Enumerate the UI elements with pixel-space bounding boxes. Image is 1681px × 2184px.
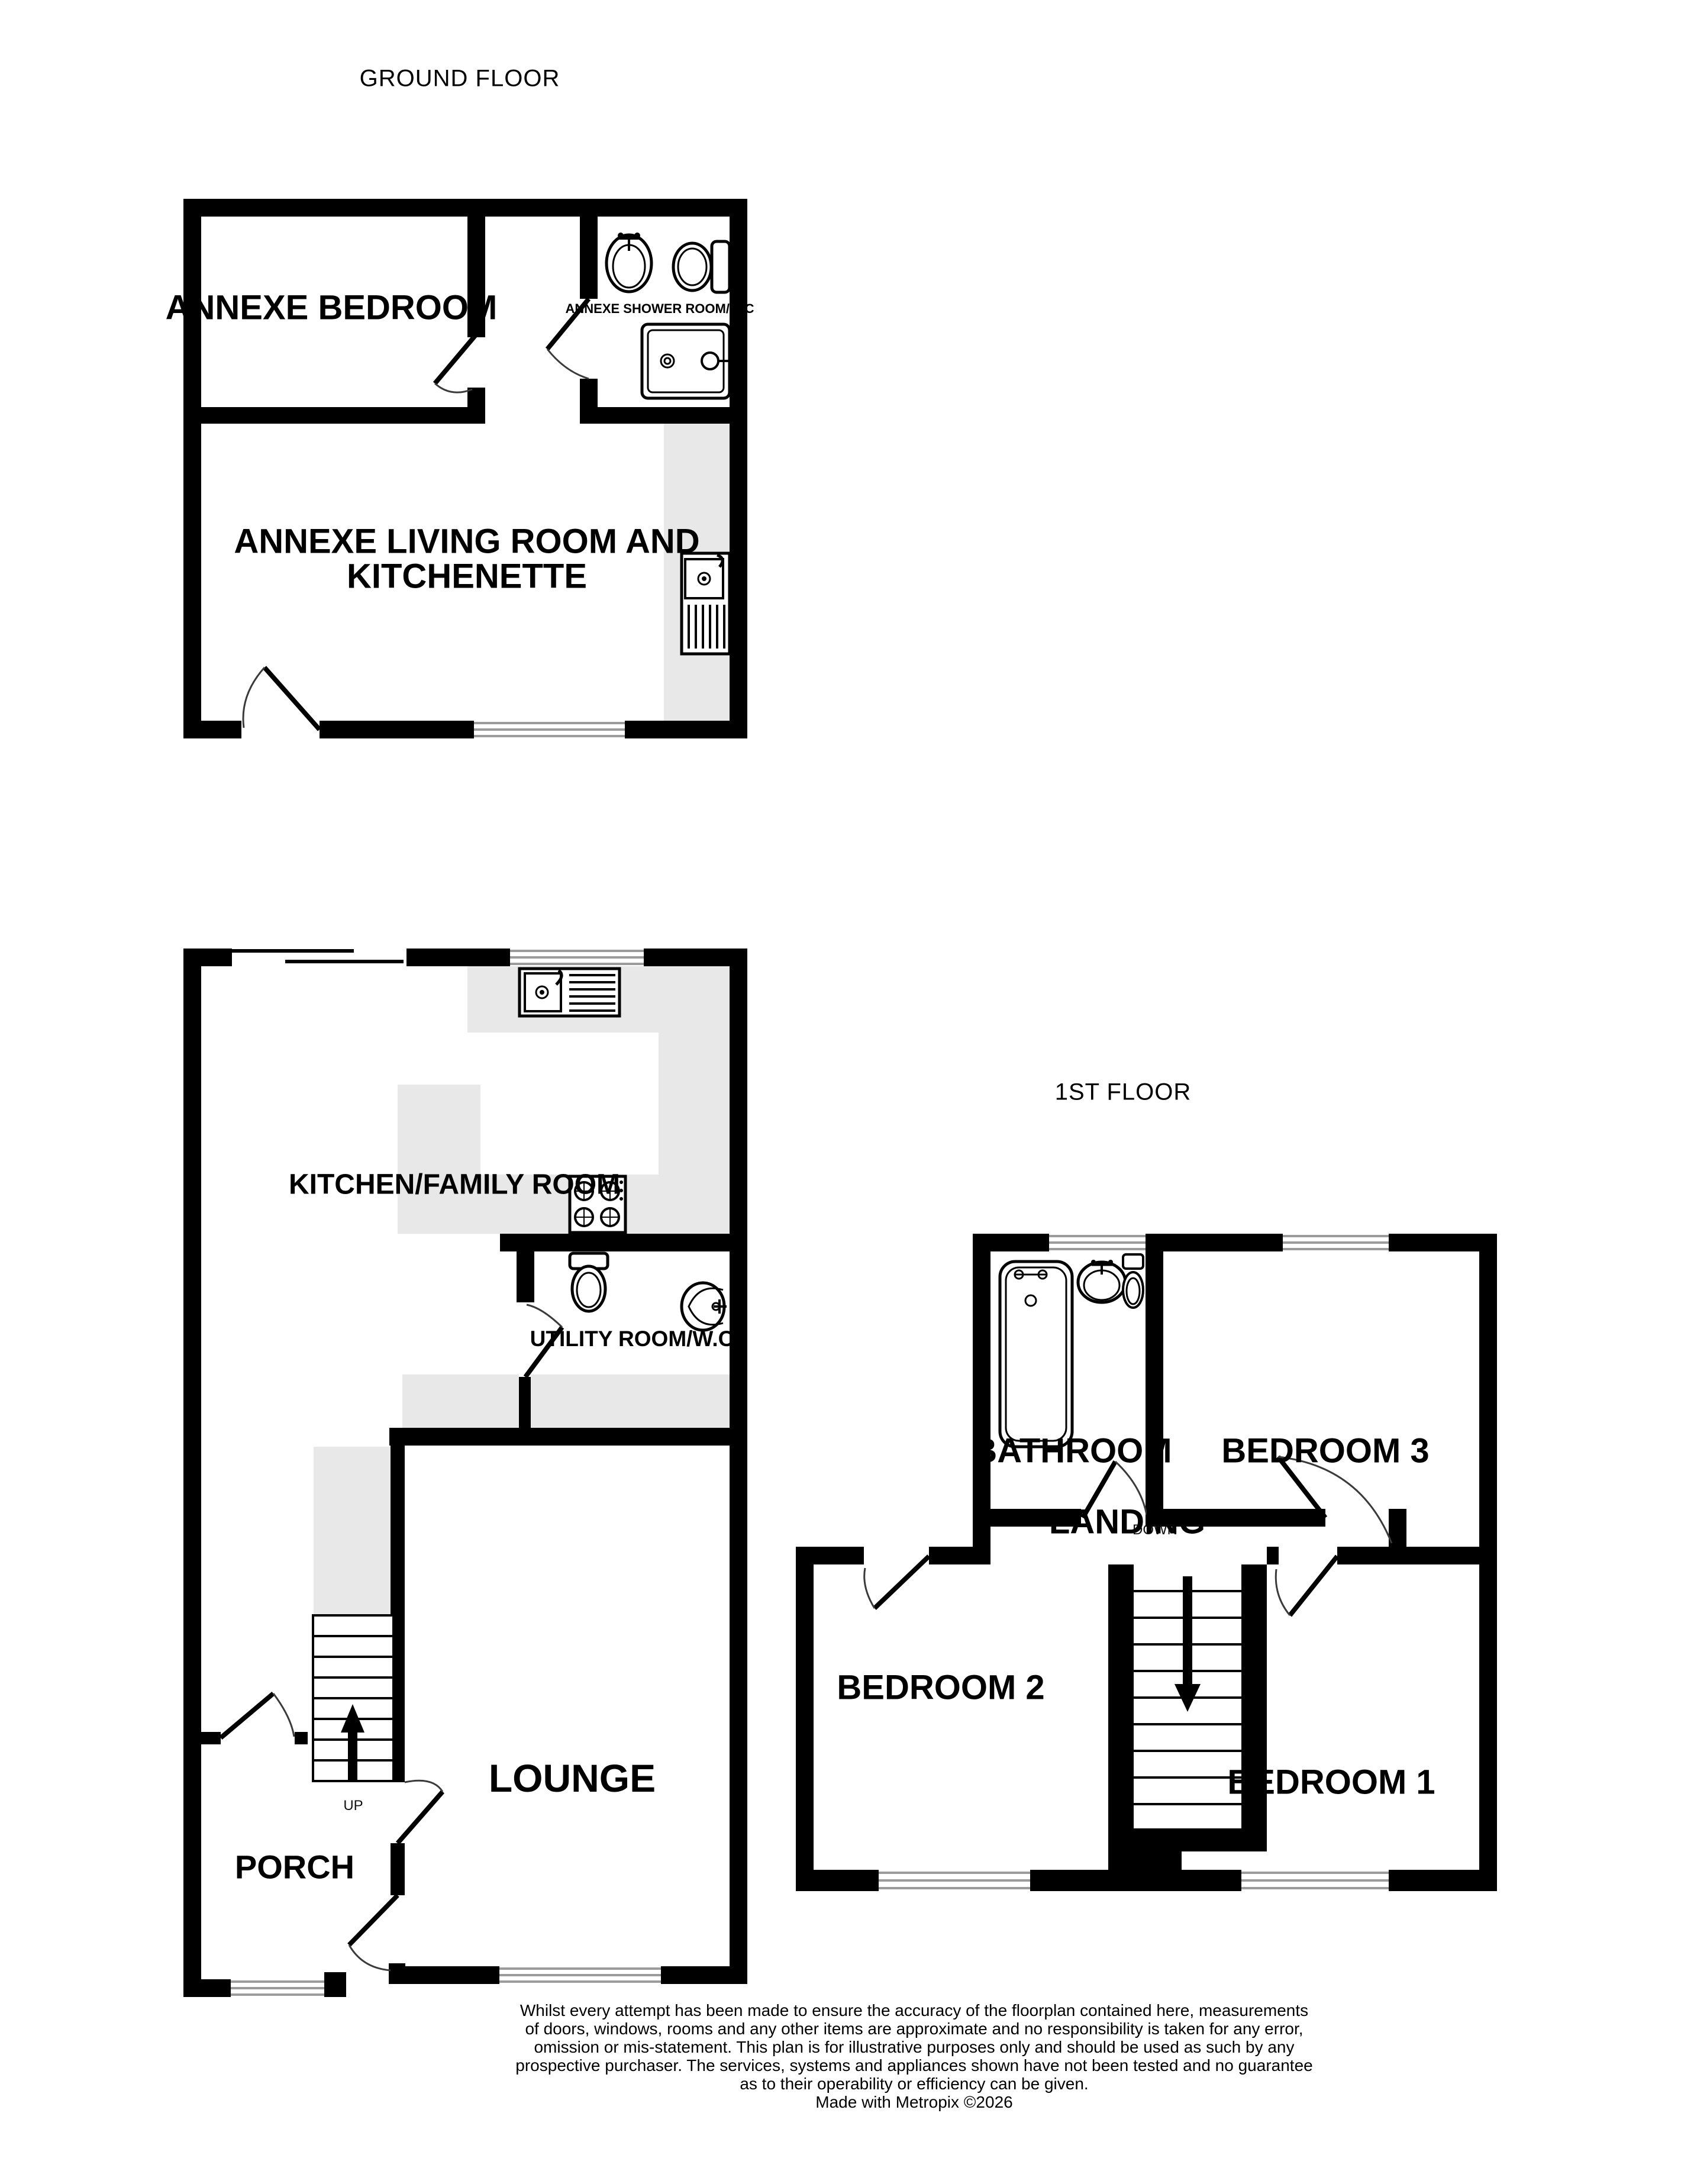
door-bedroom2	[864, 1556, 929, 1608]
floorplan-page: GROUND FLOOR 1ST FLOOR ANNEXE BEDROOM AN…	[0, 0, 1681, 2184]
disclaimer-line: prospective purchaser. The services, sys…	[515, 2056, 1312, 2075]
door-bedroom1	[1276, 1556, 1337, 1615]
utility-counter-strip	[531, 1375, 730, 1428]
door-porch-lounge	[349, 1895, 398, 1970]
sink-icon	[1078, 1260, 1125, 1302]
room-label-annexe-living-line1: ANNEXE LIVING ROOM AND	[234, 522, 699, 562]
room-label-lounge: LOUNGE	[489, 1756, 656, 1801]
metropix-credit: Made with Metropix ©2026	[515, 2093, 1312, 2111]
room-label-bedroom1: BEDROOM 1	[1227, 1763, 1435, 1802]
stairs-ground-floor	[312, 1615, 392, 1782]
disclaimer-text: Whilst every attempt has been made to en…	[515, 2001, 1312, 2111]
room-label-kitchen-family: KITCHEN/FAMILY ROOM	[289, 1169, 620, 1201]
sink-icon	[606, 233, 651, 292]
room-label-bedroom2: BEDROOM 2	[837, 1668, 1044, 1708]
toilet-icon	[1123, 1254, 1143, 1308]
kitchen-sink-icon	[682, 553, 730, 654]
room-label-annexe-bedroom: ANNEXE BEDROOM	[166, 288, 498, 328]
porch-window	[231, 1979, 324, 1997]
stairs-up-label: UP	[343, 1798, 363, 1814]
bedroom2-window	[879, 1870, 1030, 1891]
room-label-landing: LANDING	[1049, 1502, 1205, 1542]
door-front	[221, 1693, 294, 1738]
ground-floor-caption: GROUND FLOOR	[360, 66, 560, 92]
room-label-bathroom: BATHROOM	[972, 1431, 1172, 1471]
room-label-bedroom3: BEDROOM 3	[1221, 1431, 1429, 1471]
room-label-annexe-living-line2: KITCHENETTE	[347, 557, 587, 596]
door-annexe-bedroom	[435, 334, 476, 392]
room-label-utility: UTILITY ROOM/W.C	[530, 1327, 734, 1351]
sink-icon	[682, 1283, 727, 1330]
bathroom-window	[1049, 1234, 1146, 1251]
lounge-window	[499, 1966, 661, 1984]
annexe-bottom-window	[474, 721, 625, 738]
bathtub-icon	[1000, 1262, 1072, 1447]
shower-tray-icon	[642, 324, 730, 398]
disclaimer-line: omission or mis-statement. This plan is …	[515, 2038, 1312, 2056]
toilet-icon	[673, 241, 730, 292]
annexe-walls	[183, 199, 747, 738]
stairs-upper-flight-shading	[314, 1447, 391, 1615]
hall-counter-strip	[402, 1375, 519, 1428]
disclaimer-line: Whilst every attempt has been made to en…	[515, 2001, 1312, 2020]
bedroom3-window	[1283, 1234, 1389, 1251]
stairs-first-floor	[1134, 1564, 1241, 1828]
door-annexe-entrance	[243, 667, 320, 730]
toilet-icon	[570, 1253, 608, 1311]
room-label-porch: PORCH	[235, 1848, 354, 1886]
disclaimer-line: of doors, windows, rooms and any other i…	[515, 2020, 1312, 2038]
first-floor-caption: 1ST FLOOR	[1055, 1079, 1192, 1106]
door-lounge	[398, 1780, 443, 1843]
disclaimer-line: as to their operability or efficiency ca…	[515, 2075, 1312, 2093]
kitchen-sink-icon	[520, 969, 620, 1016]
room-label-annexe-shower-room: ANNEXE SHOWER ROOM/W.C	[565, 301, 754, 317]
kitchen-window	[510, 949, 644, 966]
bedroom1-window	[1241, 1870, 1389, 1891]
